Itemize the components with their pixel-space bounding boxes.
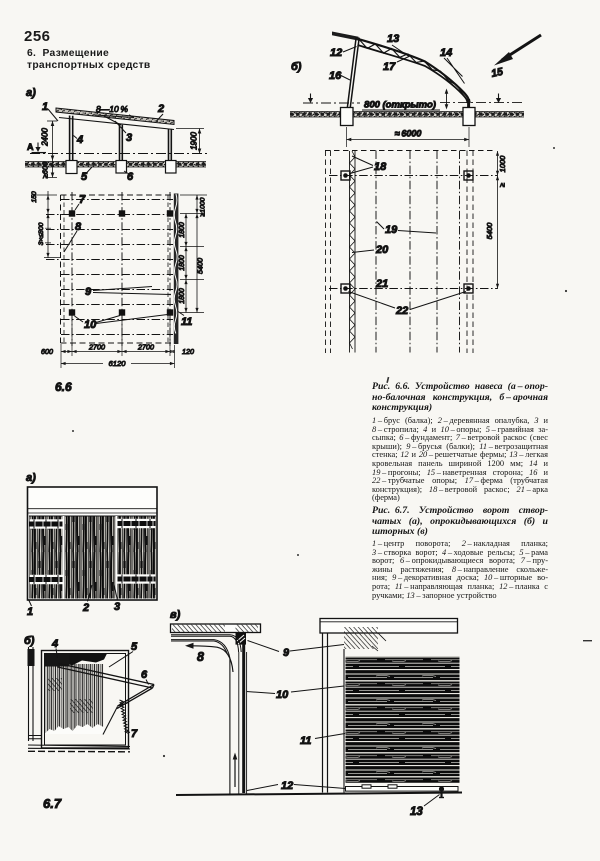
svg-text:а): а) [26, 87, 36, 99]
svg-text:20: 20 [375, 244, 389, 256]
svg-text:13: 13 [410, 806, 423, 818]
svg-text:2700: 2700 [137, 343, 154, 352]
svg-text:10: 10 [276, 689, 289, 701]
svg-text:2400: 2400 [41, 128, 50, 147]
svg-text:15: 15 [490, 66, 504, 80]
svg-text:1800: 1800 [179, 255, 186, 271]
svg-text:11: 11 [300, 735, 311, 747]
svg-text:8: 8 [75, 221, 82, 233]
svg-text:8: 8 [197, 650, 204, 664]
svg-text:2700: 2700 [88, 343, 105, 352]
svg-text:6: 6 [127, 171, 134, 183]
svg-text:19: 19 [385, 224, 398, 236]
svg-text:9: 9 [283, 647, 290, 659]
svg-text:4: 4 [76, 134, 83, 146]
svg-text:8—10 %: 8—10 % [96, 104, 128, 114]
svg-text:1800: 1800 [179, 288, 186, 304]
svg-text:≥1000: ≥1000 [200, 197, 207, 216]
svg-text:1000: 1000 [498, 155, 507, 173]
svg-text:4: 4 [51, 638, 58, 650]
svg-text:а): а) [26, 472, 36, 484]
svg-text:12: 12 [330, 47, 342, 59]
svg-text:2: 2 [157, 103, 164, 115]
svg-text:А: А [27, 142, 34, 152]
svg-text:10: 10 [84, 319, 97, 331]
svg-text:б): б) [291, 61, 302, 73]
svg-text:17: 17 [383, 61, 396, 73]
svg-text:800 (открыто): 800 (открыто) [364, 100, 436, 111]
svg-text:12: 12 [281, 780, 293, 792]
svg-text:21: 21 [375, 278, 388, 290]
svg-text:150: 150 [31, 191, 38, 203]
svg-text:3: 3 [126, 132, 132, 144]
svg-text:в): в) [170, 609, 181, 621]
svg-text:6.6: 6.6 [55, 380, 72, 394]
svg-text:7: 7 [131, 728, 138, 740]
svg-text:3: 3 [114, 601, 120, 613]
svg-text:2: 2 [82, 602, 89, 614]
svg-text:9: 9 [85, 286, 92, 298]
svg-text:1: 1 [27, 606, 33, 618]
svg-text:11: 11 [181, 316, 192, 328]
svg-text:1900: 1900 [190, 132, 199, 150]
svg-text:600: 600 [41, 347, 53, 356]
svg-text:6.7: 6.7 [43, 796, 62, 811]
svg-text:≈ 6000: ≈ 6000 [395, 129, 422, 139]
svg-text:14: 14 [440, 47, 452, 59]
svg-text:5400: 5400 [196, 258, 205, 274]
svg-text:≥: ≥ [498, 183, 507, 187]
svg-text:13: 13 [387, 33, 399, 45]
svg-text:3×≤800: 3×≤800 [38, 222, 45, 245]
svg-text:22: 22 [395, 305, 408, 317]
svg-text:6: 6 [141, 669, 148, 681]
svg-text:5400: 5400 [485, 222, 494, 240]
svg-text:1800: 1800 [179, 222, 186, 238]
svg-text:18: 18 [374, 161, 387, 173]
svg-text:16: 16 [329, 70, 342, 82]
svg-text:6120: 6120 [109, 359, 127, 368]
svg-text:1: 1 [42, 101, 48, 113]
svg-text:7: 7 [79, 194, 86, 206]
svg-text:≥600: ≥600 [41, 161, 50, 178]
svg-text:б): б) [24, 635, 35, 647]
svg-text:120: 120 [182, 347, 194, 356]
svg-text:5: 5 [131, 641, 138, 653]
